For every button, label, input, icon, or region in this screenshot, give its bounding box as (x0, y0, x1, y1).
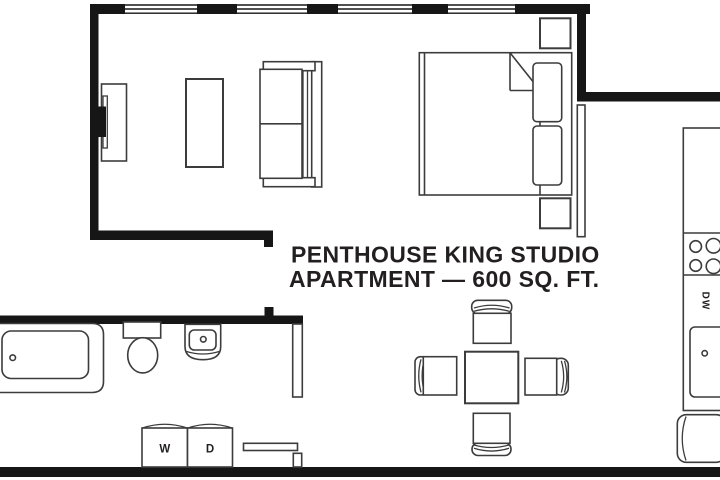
plan-title-line1: PENTHOUSE KING STUDIO (291, 242, 600, 268)
plan-title: PENTHOUSE KING STUDIO APARTMENT — 600 SQ… (289, 242, 600, 293)
washer-label: W (159, 444, 170, 456)
washer-icon: W (142, 424, 188, 467)
wall-bottom (0, 467, 720, 477)
tv-icon (94, 107, 106, 138)
wall-living-bottom-stub (264, 240, 273, 247)
sofa-back (312, 62, 322, 187)
wall-horizontal-right (577, 92, 720, 102)
bathroom-sink-icon (185, 324, 221, 359)
window-icon (125, 5, 197, 13)
wall-top-segment (412, 4, 448, 14)
pillow-icon (533, 126, 562, 185)
refrigerator-icon (677, 415, 720, 463)
bench-leg (293, 453, 301, 467)
bench-icon (244, 443, 298, 450)
sink-basin (189, 330, 216, 350)
laundry-area: W D (142, 424, 302, 467)
nightstand-icon (540, 18, 571, 48)
wall-living-bottom (90, 231, 273, 241)
wall-right-upper (577, 4, 586, 101)
floor-plan-canvas: DW (0, 0, 720, 480)
fridge-outline (677, 415, 720, 463)
living-area (94, 62, 322, 187)
pillow-icon (533, 63, 562, 122)
bathtub-basin (2, 331, 89, 379)
wall-top-segment (307, 4, 338, 14)
bathroom-area (0, 322, 302, 397)
window-icon (338, 5, 412, 13)
nightstand-icon (540, 198, 571, 228)
floor-plan-drawing: DW (0, 0, 720, 480)
toilet-tank (123, 322, 160, 338)
wall-top-segment (197, 4, 237, 14)
dryer-label: D (206, 444, 214, 456)
dining-chair-icon (525, 358, 568, 395)
coffee-table-icon (186, 79, 223, 167)
bathtub-icon (0, 324, 104, 393)
dining-chair-icon (415, 357, 457, 395)
dining-table-icon (465, 352, 518, 404)
sleeping-area (419, 18, 585, 236)
toilet-icon (123, 322, 160, 373)
walls (0, 4, 720, 477)
kitchen-sink-icon (690, 327, 720, 397)
wall-bathroom-stub (265, 307, 274, 316)
dryer-icon: D (188, 424, 233, 467)
sink-basin (690, 327, 720, 397)
toilet-bowl (128, 338, 158, 373)
dining-area (415, 300, 568, 455)
dining-chair-icon (472, 300, 512, 343)
door-leaf-icon (293, 324, 303, 397)
sofa-icon (260, 62, 322, 187)
dining-chair-icon (472, 413, 511, 455)
plan-title-line2: APARTMENT — 600 SQ. FT. (289, 266, 599, 292)
window-icon (448, 5, 515, 13)
kitchen-area: DW (677, 128, 720, 462)
dishwasher-label: DW (700, 292, 711, 311)
window-icon (237, 5, 307, 13)
closet-partition-icon (577, 105, 585, 237)
king-bed-icon (419, 53, 571, 195)
